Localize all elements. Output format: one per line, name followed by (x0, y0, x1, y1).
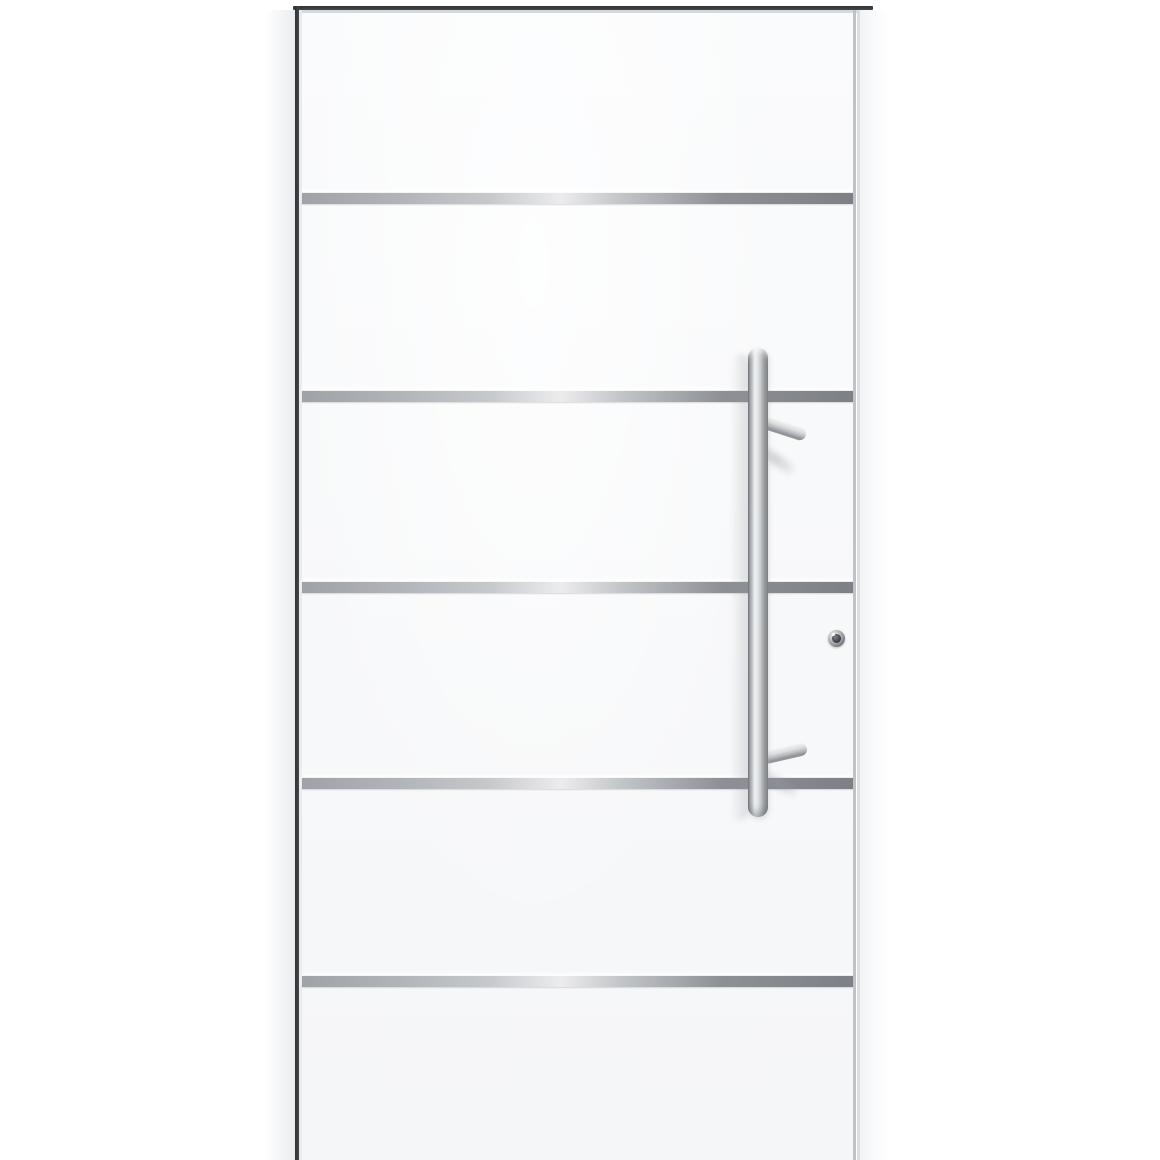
product-photo-canvas (0, 0, 1160, 1160)
door-leaf-edge-gap (853, 10, 856, 1160)
steel-inlay-stripe (302, 192, 853, 204)
steel-inlay-stripe (302, 975, 853, 987)
door-handle-bar (748, 348, 768, 817)
handle-bar-shadow (731, 354, 749, 820)
steel-inlay-stripe (302, 581, 853, 593)
steel-inlay-stripe (302, 390, 853, 402)
door-frame-top-highlight (300, 10, 866, 13)
lock-cylinder-keyhole (828, 630, 845, 647)
frame-outer-shadow (266, 10, 295, 1160)
door-frame-right (860, 10, 890, 1160)
